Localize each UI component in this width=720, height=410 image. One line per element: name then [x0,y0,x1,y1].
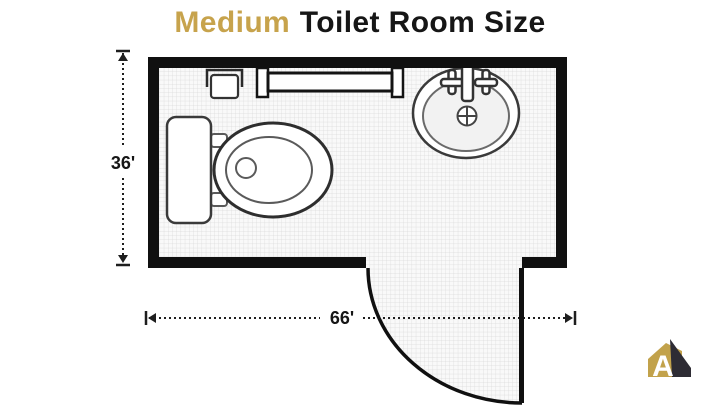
towel-bracket-right [392,68,403,97]
wall-right [556,57,567,268]
arrow-up-icon [118,53,128,61]
arrow-left-icon [148,313,156,323]
toilet-drain [236,158,256,178]
door-leaf [519,268,524,403]
wall-bottom-left [148,257,366,268]
door-swing-floor [368,268,522,403]
dimension-height: 36' [111,51,135,265]
height-dimension-label: 36' [111,153,135,173]
wall-left [148,57,159,268]
faucet-spout [462,64,473,101]
width-dimension-label: 66' [330,308,354,328]
wall-bottom-right [522,257,567,268]
arrow-right-icon [565,313,573,323]
door-threshold [366,257,522,268]
towel-bracket-left [257,68,268,97]
infographic-medium-toilet-room: MediumToilet Room Size 36' [0,0,720,410]
wall-top [148,57,567,68]
toilet-tank [167,117,211,223]
toilet-paper-holder-icon [207,70,242,98]
faucet-handle-left-bar [441,79,463,86]
tp-roll [211,75,238,98]
brand-logo: A [645,336,695,384]
toilet-icon [167,117,332,223]
logo-letter: A [652,350,674,383]
arrow-down-icon [118,255,128,263]
floorplan-drawing: 36' 66' [0,0,720,410]
towel-rail [268,73,392,91]
faucet-handle-right-bar [475,79,497,86]
